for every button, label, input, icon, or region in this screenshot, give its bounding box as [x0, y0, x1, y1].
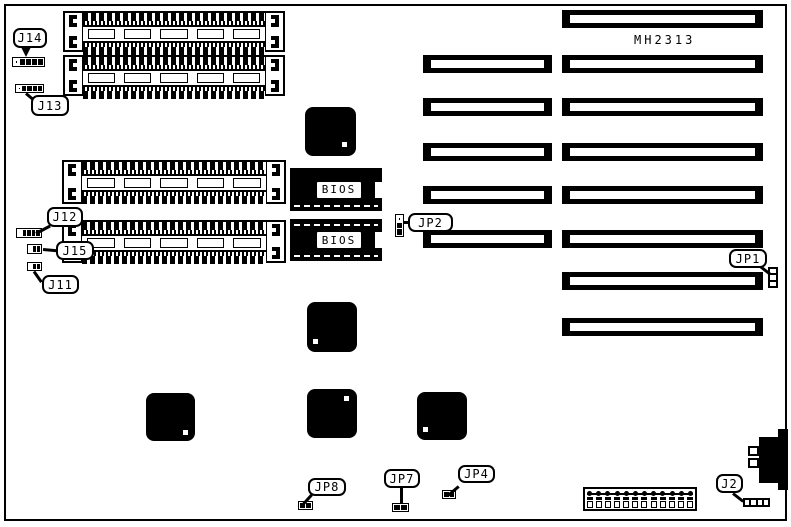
latch-icon	[65, 13, 83, 50]
bios-chip-label: BIOS	[316, 231, 362, 249]
bios-chip-label: BIOS	[316, 181, 362, 199]
jumper-jp7	[392, 503, 409, 512]
bios-chip-1: BIOS	[290, 168, 382, 211]
expansion-slot-short-1	[423, 55, 552, 73]
latch-icon	[64, 162, 82, 202]
pin1-dot	[342, 142, 347, 147]
keyboard-connector-pin	[748, 458, 759, 468]
simm-body-segments	[83, 71, 265, 85]
bios-chip-2: BIOS	[290, 219, 382, 261]
power-pin-row-square	[587, 500, 693, 508]
pin1-dot	[313, 339, 318, 344]
qfp-chip-4	[307, 389, 357, 438]
expansion-slot-long-8	[562, 318, 763, 336]
expansion-slot-short-2	[423, 98, 552, 116]
model-number-label: MH2313	[634, 33, 695, 47]
callout-jp8: JP8	[308, 478, 346, 496]
qfp-chip-3	[146, 393, 195, 441]
keyboard-connector-step-bottom	[778, 483, 788, 490]
jumper-jp2	[395, 214, 404, 237]
expansion-slot-long-1	[562, 10, 763, 28]
pin1-dot	[344, 396, 349, 401]
motherboard-diagram: BIOS BIOS MH2313 J14 J13 J12	[0, 0, 791, 527]
jumper-j15	[27, 244, 42, 254]
latch-icon	[65, 57, 83, 94]
chip-notch	[375, 182, 382, 198]
chip-notch	[375, 232, 382, 248]
simm-socket-4	[62, 220, 286, 263]
expansion-slot-short-5	[423, 230, 552, 248]
expansion-slot-long-7	[562, 272, 763, 290]
callout-j15: J15	[56, 241, 94, 260]
power-connector	[583, 487, 697, 511]
keyboard-connector-step-top	[778, 429, 788, 438]
callout-j14: J14	[13, 28, 47, 48]
expansion-slot-long-4	[562, 143, 763, 161]
callout-tail	[400, 487, 403, 503]
latch-icon	[266, 222, 284, 261]
callout-jp2: JP2	[408, 213, 453, 232]
expansion-slot-long-6	[562, 230, 763, 248]
callout-jp7: JP7	[384, 469, 420, 488]
keyboard-connector	[759, 437, 788, 483]
simm-body-segments	[83, 27, 265, 41]
jumper-j13	[15, 84, 44, 93]
simm-socket-2	[63, 55, 285, 96]
callout-jp1: JP1	[729, 249, 767, 268]
pin1-dot	[423, 427, 428, 432]
qfp-chip-1	[305, 107, 356, 156]
callout-tail	[21, 47, 31, 57]
jumper-jp1	[768, 267, 778, 288]
latch-icon	[265, 57, 283, 94]
expansion-slot-long-5	[562, 186, 763, 204]
callout-j13: J13	[31, 95, 69, 116]
jumper-j14	[12, 57, 45, 67]
pin1-dot	[183, 430, 188, 435]
callout-j12: J12	[47, 207, 83, 227]
latch-icon	[265, 13, 283, 50]
simm-body-segments	[82, 236, 266, 250]
simm-socket-3	[62, 160, 286, 204]
qfp-chip-5	[417, 392, 467, 440]
expansion-slot-short-4	[423, 186, 552, 204]
latch-icon	[266, 162, 284, 202]
jumper-j2	[743, 498, 770, 507]
simm-socket-1	[63, 11, 285, 52]
expansion-slot-long-3	[562, 98, 763, 116]
callout-j11: J11	[42, 275, 79, 294]
expansion-slot-long-2	[562, 55, 763, 73]
callout-jp4: JP4	[458, 465, 495, 483]
simm-body-segments	[82, 176, 266, 190]
qfp-chip-2	[307, 302, 357, 352]
keyboard-connector-pin	[748, 446, 759, 456]
callout-j2: J2	[716, 474, 743, 493]
power-pin-row-round	[587, 490, 693, 497]
expansion-slot-short-3	[423, 143, 552, 161]
